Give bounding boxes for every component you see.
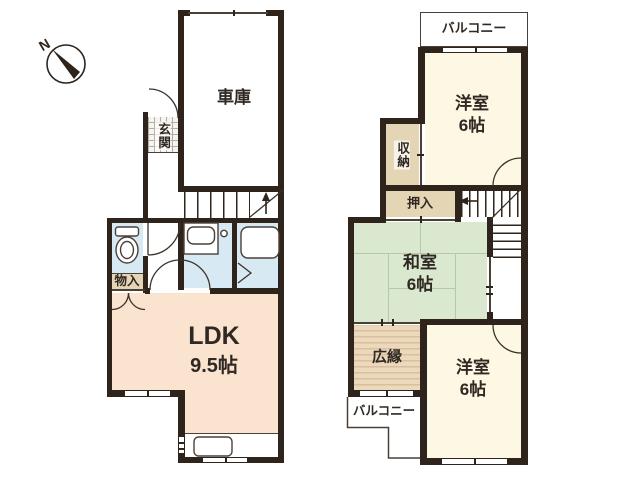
western-bottom-window-tick [474, 458, 476, 465]
kitchen-counter [185, 433, 278, 457]
tatami-line [420, 222, 421, 253]
tatami-right-wall-upper [487, 217, 493, 257]
ldk-bottomleft-wall-b [170, 390, 185, 397]
closet-2f-left-wall [380, 118, 386, 222]
closet-2f-label: 収納 [394, 141, 410, 170]
western-bottom-left-wall [420, 397, 427, 465]
stairs-bottom-wall-1f [142, 218, 284, 223]
ldk-bottom-wall-a [178, 457, 203, 463]
entrance-label: 玄関 [155, 122, 171, 151]
veranda-door-tick2 [392, 319, 394, 326]
garage-front-pillar-right [266, 10, 284, 16]
veranda-window-tick [386, 390, 388, 397]
closet-1f-label: 物入 [114, 273, 139, 289]
stairs-2f-right-run [493, 221, 521, 258]
washroom [184, 223, 232, 288]
western-bottom-name: 洋室 [456, 357, 490, 379]
toilet-top-wall [107, 218, 148, 223]
tatami-size: 6帖 [403, 274, 437, 296]
ldk-name: LDK [188, 320, 239, 353]
western-top-top-wall-a [418, 47, 443, 53]
hall-left-wall-upper [143, 112, 148, 223]
left-outer-wall-2f [348, 217, 354, 397]
ldk-top-wall-b [210, 288, 278, 294]
hall-washroom-divider [178, 218, 184, 290]
compass-circle [47, 45, 85, 83]
bathroom [237, 223, 283, 288]
kitchen-bottom-window-tick [225, 457, 227, 463]
tatami-door-tick2 [486, 293, 493, 295]
western-bottom-bottom-wall-a [420, 458, 442, 465]
closet-2f-door-tick [417, 154, 424, 156]
veranda-sliding-door [354, 322, 420, 324]
garage-left-wall [178, 10, 184, 192]
ldk-top-wall-a [145, 288, 150, 294]
stairs-1f [184, 192, 250, 218]
veranda-bottom-wall-b [413, 390, 427, 397]
ldk-left-window-tick [147, 390, 149, 397]
compass: N [36, 35, 85, 83]
closet-2f-top-wall [380, 118, 425, 124]
toilet-door-arc [148, 223, 180, 255]
ldk-size: 9.5帖 [188, 352, 239, 378]
tatami-label: 和室 6帖 [403, 252, 437, 296]
stairs-1f-arrowhead [262, 192, 270, 201]
ldk-label: LDK 9.5帖 [188, 320, 239, 379]
balcony-bottom-label: バルコニー [353, 403, 415, 419]
wash-bath-divider [232, 223, 237, 288]
western-bottom-label: 洋室 6帖 [456, 357, 490, 401]
compass-north-label: N [36, 35, 53, 54]
veranda-label: 広縁 [372, 347, 402, 367]
mid-wall-2f [380, 185, 528, 191]
tatami-door-tick1 [486, 286, 493, 288]
oshiire-door-tick [420, 216, 422, 223]
western-bottom-size: 6帖 [456, 379, 490, 401]
kitchen-left-wall-upper [178, 397, 185, 437]
kitchen-side-window [178, 437, 185, 453]
western-top-size: 6帖 [455, 115, 489, 137]
stairs-2f-upper-run [461, 191, 519, 217]
tatami-name: 和室 [403, 252, 437, 274]
toilet-room [112, 223, 143, 273]
western-bottom-bottom-wall-b [507, 458, 528, 465]
compass-needle-icon [52, 49, 80, 79]
veranda-bottom-wall-a [348, 390, 360, 397]
balcony-top-label: バルコニー [442, 21, 507, 38]
entrance-door-arc [149, 89, 178, 118]
ldk-bottom-wall-b [247, 457, 284, 463]
veranda-door-tick1 [381, 319, 383, 326]
overlay-graphics: N [0, 0, 640, 480]
western-top-window-tick [475, 47, 477, 53]
western-top-label: 洋室 6帖 [455, 93, 489, 137]
western-top-left-wall [418, 47, 425, 124]
western-bottom-top-wall [420, 319, 528, 325]
entrance-edge-line [148, 152, 178, 153]
western-top-top-wall-b [507, 47, 528, 53]
left-outer-wall-1f [107, 218, 112, 397]
garage-label: 車庫 [217, 87, 251, 109]
garage-door-tick [233, 10, 235, 16]
tatami-topleft-wall [348, 217, 386, 223]
oshiire-right-wall [455, 185, 461, 222]
kitchen-side-window-tick2 [178, 448, 185, 450]
tatami-line [455, 253, 456, 322]
ldk-room-lower [185, 390, 278, 433]
kitchen-side-window-tick1 [178, 442, 185, 444]
tatami-sliding-door [489, 257, 491, 312]
closet-1f-door-line [112, 289, 145, 291]
veranda-western-divider [420, 319, 427, 397]
right-outer-wall-1f [278, 10, 284, 463]
right-outer-wall-2f [521, 47, 528, 465]
garage-door-line [188, 12, 268, 14]
ldk-bottomleft-wall-a [107, 390, 125, 397]
floor-plan: N [0, 0, 640, 480]
western-top-name: 洋室 [455, 93, 489, 115]
oshiire-label: 押入 [407, 196, 433, 213]
garage-bottom-wall [178, 186, 284, 192]
